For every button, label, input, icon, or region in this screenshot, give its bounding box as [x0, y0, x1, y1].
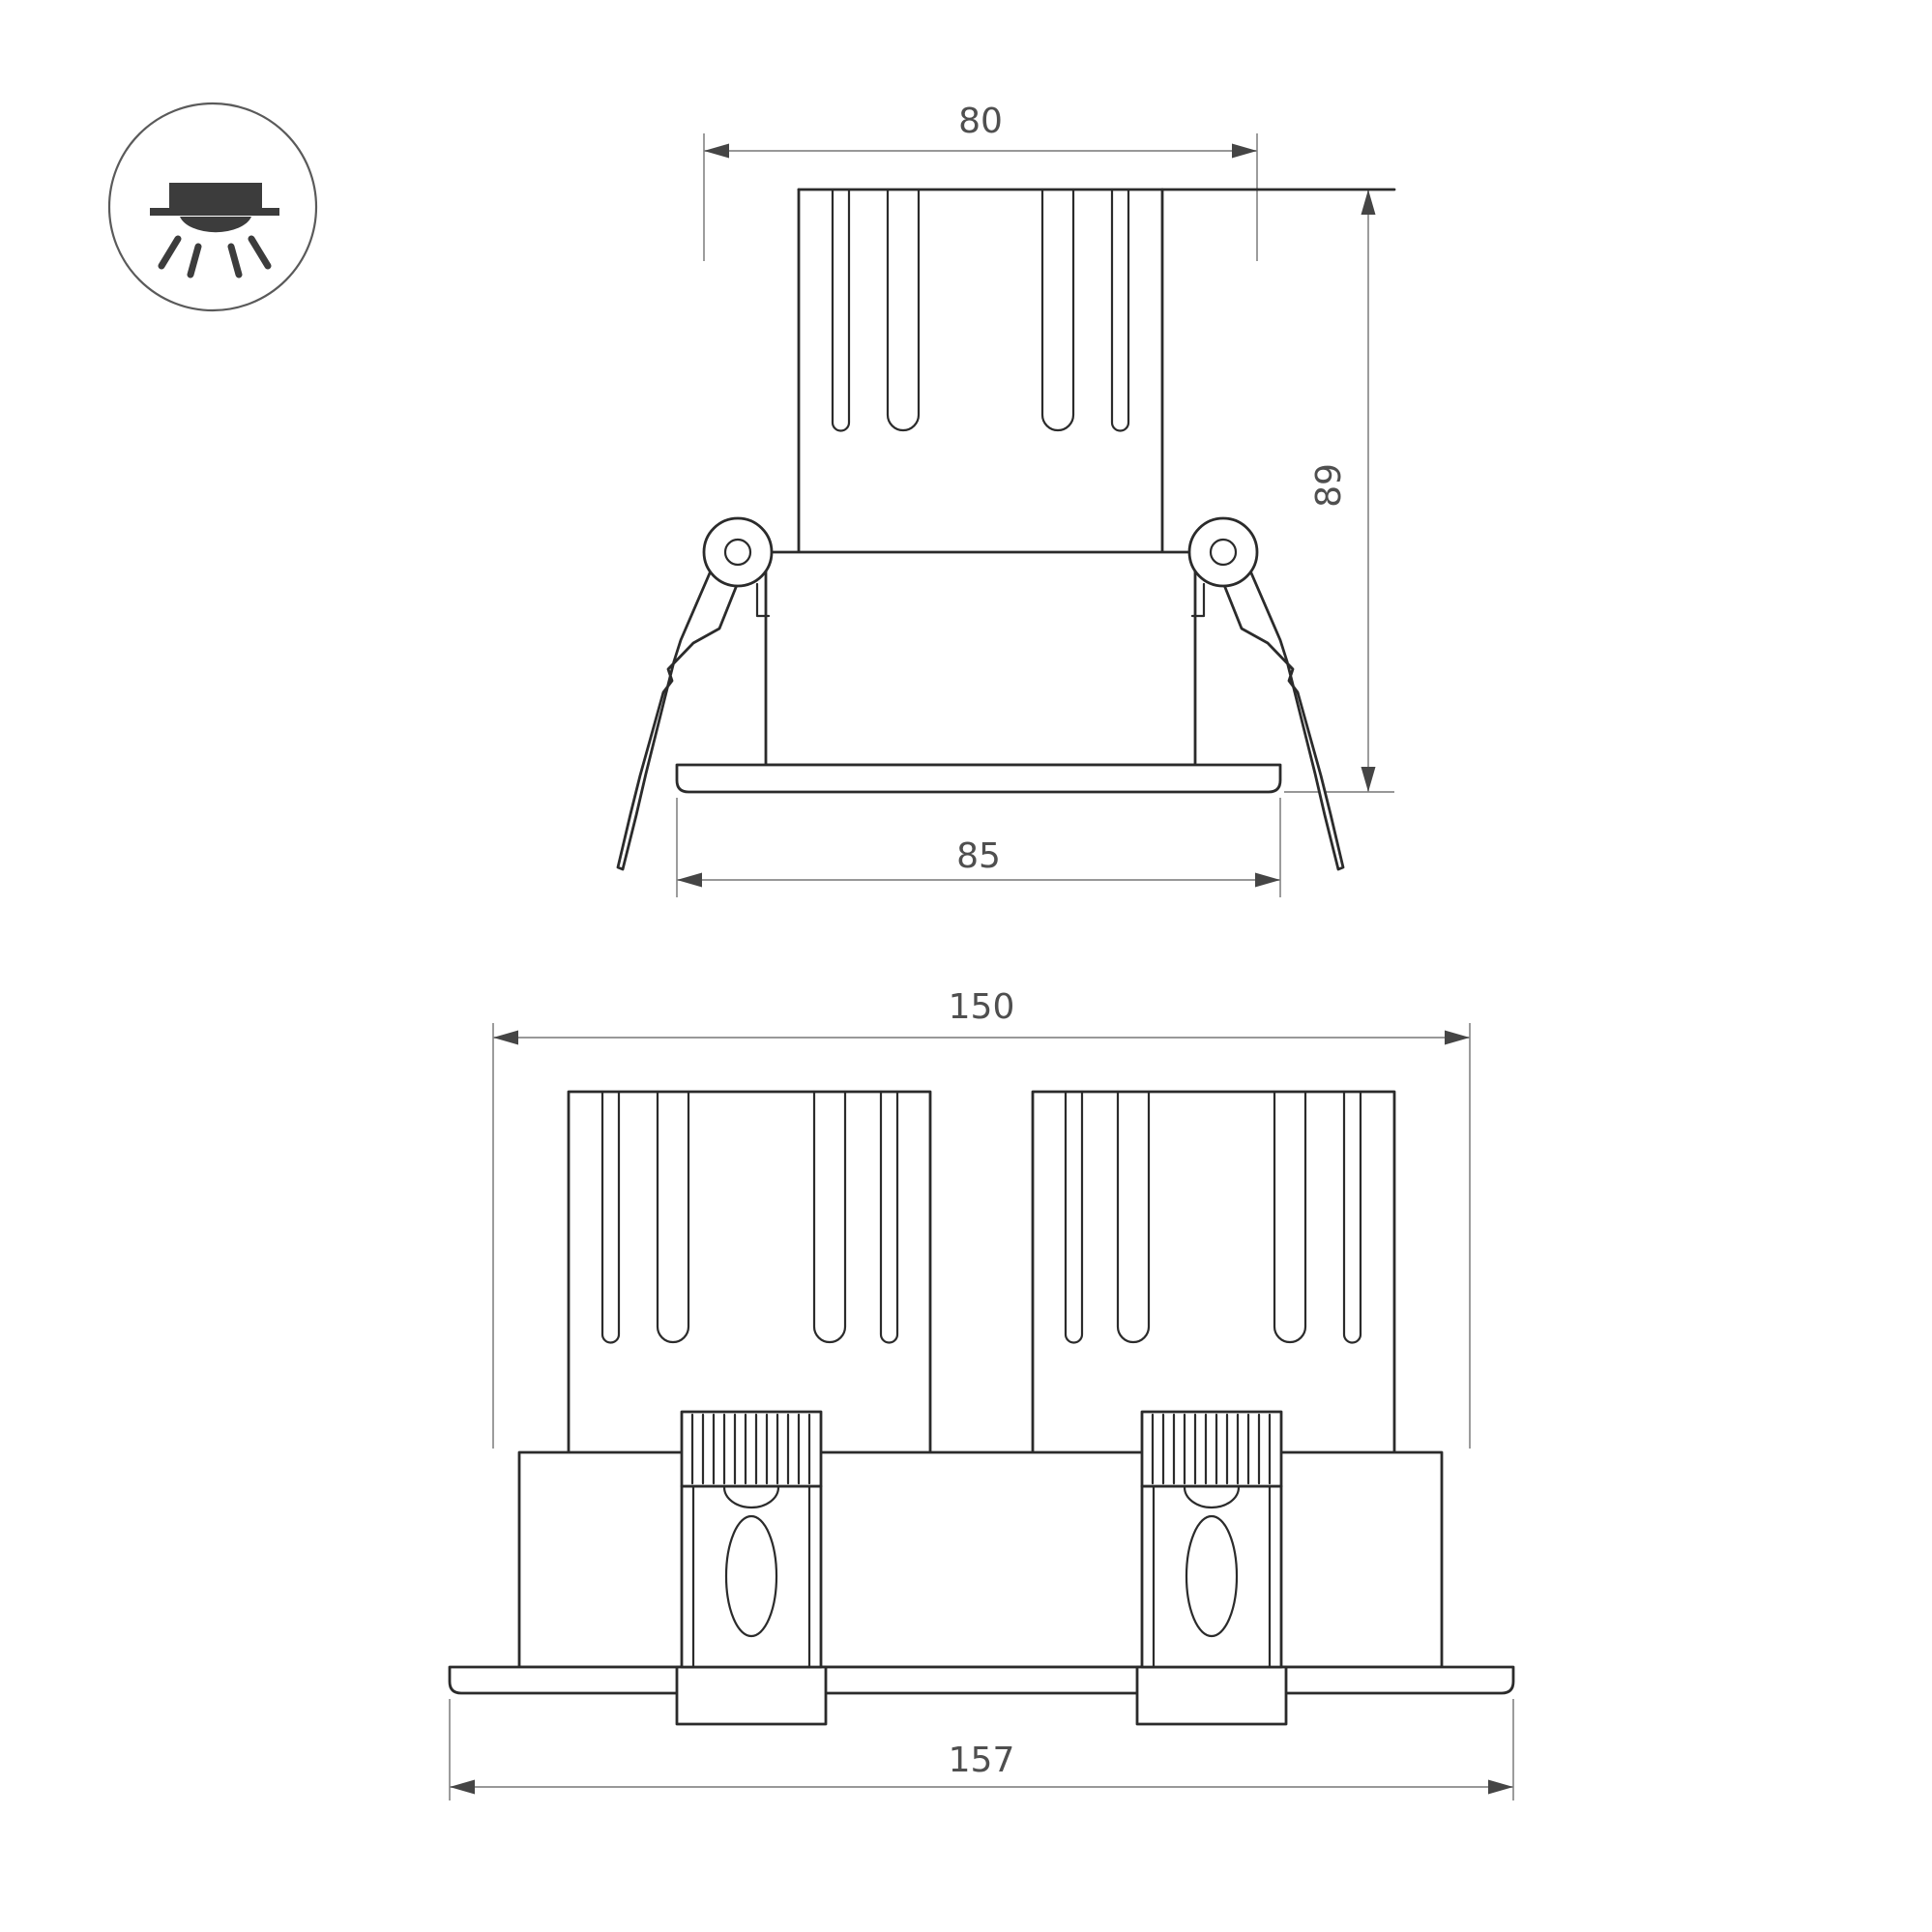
dimension-width-flange: 85 [677, 798, 1280, 897]
dim-label-150: 150 [949, 987, 1015, 1027]
single-lamp-front-view: 80 89 85 [618, 102, 1394, 897]
dimension-width-body: 150 [493, 987, 1470, 1449]
dim-label-157: 157 [949, 1741, 1015, 1780]
dimension-width-top: 80 [704, 102, 1257, 261]
dim-label-80: 80 [958, 102, 1003, 141]
left-bracket-column [682, 1486, 821, 1667]
right-bracket-foot [1137, 1667, 1286, 1724]
left-pivot-bracket [677, 1412, 826, 1724]
right-clip-head [1189, 518, 1257, 586]
icon-light-rays [161, 239, 268, 275]
dual-trim-flange [450, 1667, 1513, 1693]
right-spring-clip [1189, 518, 1343, 869]
technical-drawing: 80 89 85 [0, 0, 1932, 1932]
right-heatsink [1033, 1092, 1394, 1452]
trim-flange [677, 765, 1280, 792]
left-heatsink [569, 1092, 930, 1452]
dim-label-89: 89 [1309, 463, 1349, 508]
heatsink-fin-slots [833, 190, 1128, 431]
icon-ceiling-trim [150, 208, 279, 216]
lamp-body [766, 552, 1195, 765]
left-spring-clip [618, 518, 772, 869]
dimension-width-dual-flange: 157 [450, 1699, 1513, 1800]
dual-lamp-front-view: 150 [450, 987, 1513, 1800]
right-pivot-bracket [1137, 1412, 1286, 1724]
left-bracket-foot [677, 1667, 826, 1724]
drawing-canvas: 80 89 85 [0, 0, 1932, 1932]
right-heatsink-fin-slots [1066, 1092, 1361, 1343]
recessed-downlight-icon [109, 103, 316, 310]
right-bracket-column [1142, 1486, 1281, 1667]
mounting-frame [519, 1452, 1442, 1667]
icon-light-dome [180, 217, 251, 232]
heatsink [799, 190, 1394, 552]
icon-lamp-body [169, 183, 262, 209]
dim-label-85: 85 [956, 836, 1001, 876]
left-heatsink-fin-slots [602, 1092, 897, 1343]
right-clip-lever [1224, 569, 1343, 869]
left-clip-head [704, 518, 772, 586]
